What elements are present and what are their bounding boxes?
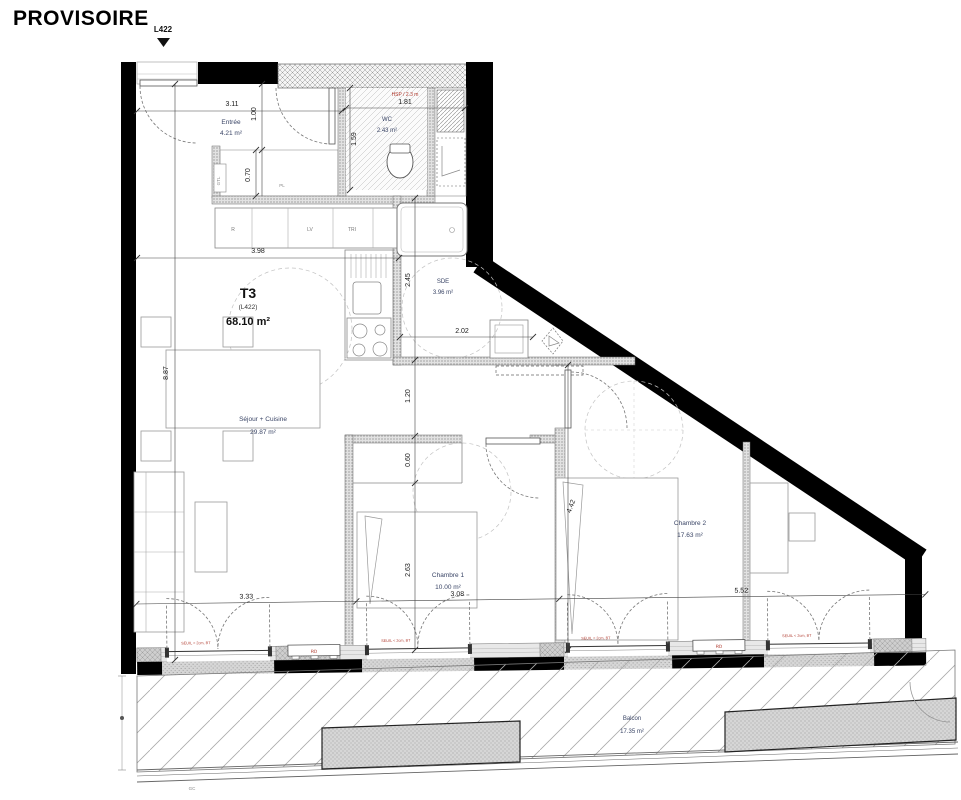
dim-placard: 0.70	[245, 168, 252, 182]
coffee-table	[195, 502, 227, 572]
room-area-sejour: 29.87 m²	[250, 429, 276, 436]
bedroom1-door-swing	[486, 444, 540, 498]
room-label-sde: SDE	[437, 279, 449, 285]
room-label-chambre2: Chambre 2	[674, 520, 707, 527]
rd-box-2: RD	[693, 640, 745, 655]
chair	[223, 431, 253, 461]
bottom-dim-chain: 3.33 3.08 5.52	[133, 585, 928, 607]
chair	[141, 317, 171, 347]
threshold-note: SEUIL < 2cm, BT	[581, 636, 611, 640]
rd-label: RD	[716, 644, 723, 649]
dim-entree-w: 3.11	[225, 101, 238, 108]
entrance-door-swing	[140, 86, 197, 143]
rd-label: RD	[311, 649, 318, 654]
trash-label: TRI	[348, 227, 356, 233]
dishwasher-label: LV	[307, 227, 313, 233]
dim-placard-ch1: 0.60	[405, 453, 412, 467]
room-area-balcon: 17.35 m²	[620, 729, 644, 735]
column-symbol	[542, 328, 563, 354]
dim-bottom-ch1: 3.08	[450, 591, 464, 598]
dim-bottom-sejour: 3.33	[239, 594, 253, 601]
wc-door-leaf	[329, 88, 335, 144]
floor-plan-drawing: PROVISOIRE L422	[0, 0, 961, 800]
railing-label: GC	[189, 786, 197, 791]
diagonal-wall	[479, 264, 921, 558]
room-area-chambre2: 17.63 m²	[677, 532, 703, 539]
dim-wc-h: 1.59	[351, 132, 358, 146]
window-band	[278, 64, 471, 88]
threshold-note: SEUIL < 2cm, BT	[381, 639, 411, 643]
dim-sde-w: 2.02	[455, 328, 469, 335]
unit-marker: L422	[154, 25, 173, 47]
room-label-balcon: Balcon	[623, 716, 641, 722]
sink-icon	[353, 282, 381, 314]
room-area-wc: 2.43 m²	[377, 128, 397, 134]
desk	[750, 483, 788, 573]
room-label-sejour: Séjour + Cuisine	[239, 416, 287, 423]
room-area-sde: 3.96 m²	[433, 290, 453, 296]
unit-code: T3	[240, 285, 257, 301]
bedroom2-door-swing	[571, 372, 627, 428]
dim-bottom-ch2: 5.52	[734, 588, 748, 595]
dim-wc-w: 1.81	[398, 99, 412, 106]
ceiling-height-note: HSP / 2.3 m	[392, 92, 419, 98]
furniture	[134, 317, 815, 640]
unit-marker-label: L422	[154, 25, 173, 34]
shower-icon	[397, 203, 467, 256]
dim-entree-d: 1.00	[251, 107, 258, 121]
dim-sde-h: 2.45	[405, 273, 412, 287]
room-area-chambre1: 10.00 m²	[435, 584, 461, 591]
plan-title: PROVISOIRE	[13, 7, 149, 30]
unit-area: 68.10 m²	[226, 316, 270, 328]
planter-1	[322, 721, 520, 769]
dim-ch1-h: 2.63	[405, 563, 412, 577]
french-door-4: SEUIL < 2cm, BT	[765, 590, 872, 655]
dim-couloir: 1.20	[405, 389, 412, 403]
bedroom1-door-leaf	[486, 438, 540, 444]
room-label-chambre1: Chambre 1	[432, 572, 465, 579]
entry-closet	[220, 150, 338, 196]
closet-label: PL	[279, 183, 285, 188]
entrance-door-leaf	[140, 80, 197, 86]
technical-duct	[437, 90, 464, 132]
desk-chair	[789, 513, 815, 541]
room-area-entree: 4.21 m²	[220, 130, 243, 137]
gtl-label: GTL	[216, 176, 221, 185]
room-label-entree: Entrée	[221, 119, 241, 126]
marker-arrow-icon	[157, 38, 170, 47]
fridge-label: R	[231, 227, 235, 233]
floor-plan-page: PROVISOIRE L422	[0, 0, 961, 800]
unit-lot: (L422)	[239, 304, 258, 311]
washing-machine-icon	[490, 320, 528, 358]
wc-door-swing	[276, 88, 332, 144]
chair	[141, 431, 171, 461]
dim-sejour-top: 3.98	[251, 248, 265, 255]
threshold-note: SEUIL < 2cm, BT	[181, 641, 211, 645]
dim-sejour-h: 8.87	[163, 366, 170, 380]
threshold-note: SEUIL < 2cm, BT	[782, 634, 812, 638]
room-label-wc: WC	[382, 117, 393, 123]
rd-box-1: RD	[288, 645, 340, 660]
wc-floor	[346, 88, 427, 190]
